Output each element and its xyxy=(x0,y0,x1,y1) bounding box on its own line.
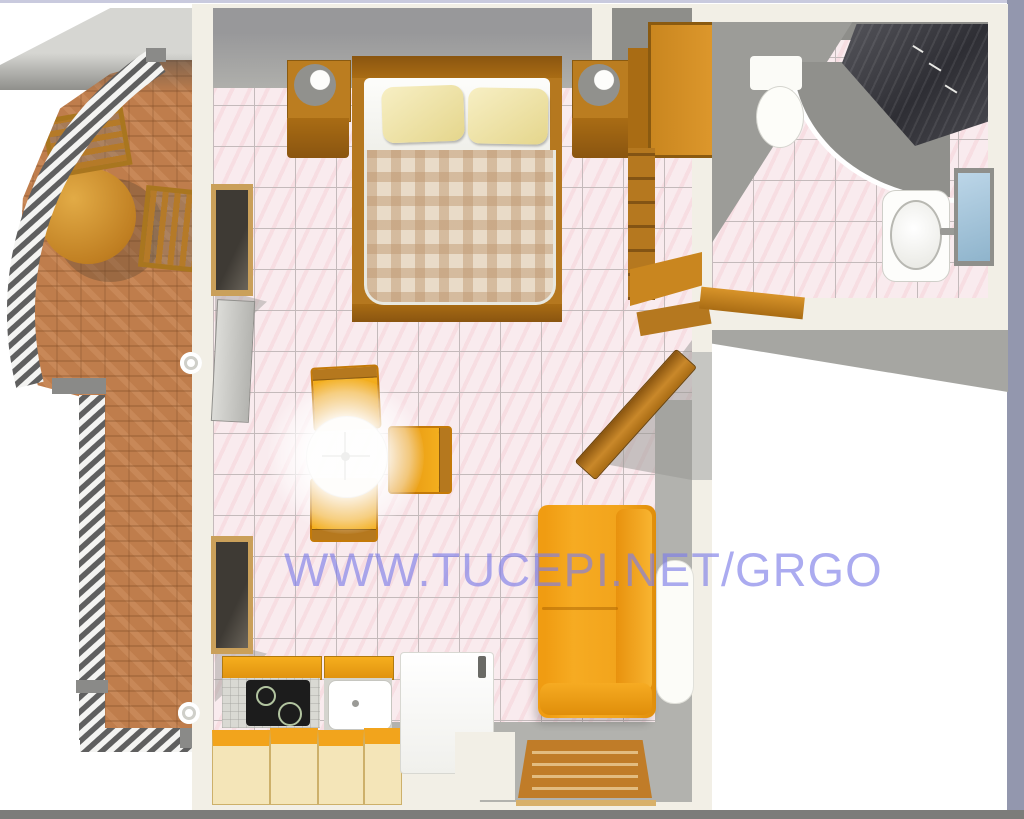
bathroom-window-glass xyxy=(958,173,990,261)
burner-ring xyxy=(278,702,302,726)
window-glass xyxy=(216,190,248,290)
bed-footboard xyxy=(352,304,562,322)
bed-blanket xyxy=(364,150,556,305)
toilet-bowl xyxy=(756,86,804,148)
top-edge-line xyxy=(0,0,1024,3)
sink-faucet xyxy=(352,700,359,707)
kitchen-sink xyxy=(328,680,392,730)
bed-pillow xyxy=(468,87,549,144)
floor-plan-scene: WWW.TUCEPI.NET/GRGO xyxy=(0,0,1024,819)
sofa-seat-seam xyxy=(542,607,618,610)
partition-doorway xyxy=(692,352,712,480)
kitchen-drawer xyxy=(212,730,270,805)
window-glass xyxy=(216,542,248,648)
cooktop-counter-top xyxy=(222,656,322,680)
kitchen-drawer xyxy=(364,728,402,805)
toilet-cistern xyxy=(750,56,802,90)
refrigerator-handle xyxy=(478,656,486,678)
nightstand-right-front xyxy=(572,118,634,158)
bed-pillow xyxy=(381,85,465,144)
nightstand-left-front xyxy=(287,118,349,158)
table-glow xyxy=(268,378,424,534)
watermark-text: WWW.TUCEPI.NET/GRGO xyxy=(284,542,883,597)
sofa xyxy=(538,505,656,718)
washbasin-bowl xyxy=(890,200,942,270)
right-edge-band xyxy=(1007,0,1024,819)
bottom-edge-band xyxy=(0,810,1024,819)
bed-headboard xyxy=(352,56,562,78)
bathroom-exterior-shadow xyxy=(712,330,1008,392)
kitchen-drawer xyxy=(270,728,318,805)
nightstand-lamp xyxy=(578,64,620,106)
door-threshold xyxy=(516,800,656,806)
alcove-wall-wedge xyxy=(455,732,515,800)
bathroom-outer-wall-top xyxy=(712,4,1008,24)
sofa-back-cushion xyxy=(616,509,652,691)
doormat-inner xyxy=(532,748,638,790)
wall-lamp xyxy=(178,702,200,724)
burner-ring xyxy=(256,686,276,706)
sink-counter-top xyxy=(324,656,394,680)
sofa-armrest xyxy=(540,683,652,715)
nightstand-lamp xyxy=(294,64,336,106)
wall-lamp xyxy=(180,352,202,374)
kitchen-drawer xyxy=(318,730,364,805)
doormat xyxy=(518,740,652,798)
balcony-railing xyxy=(0,40,210,770)
balcony-door-open xyxy=(211,299,255,423)
